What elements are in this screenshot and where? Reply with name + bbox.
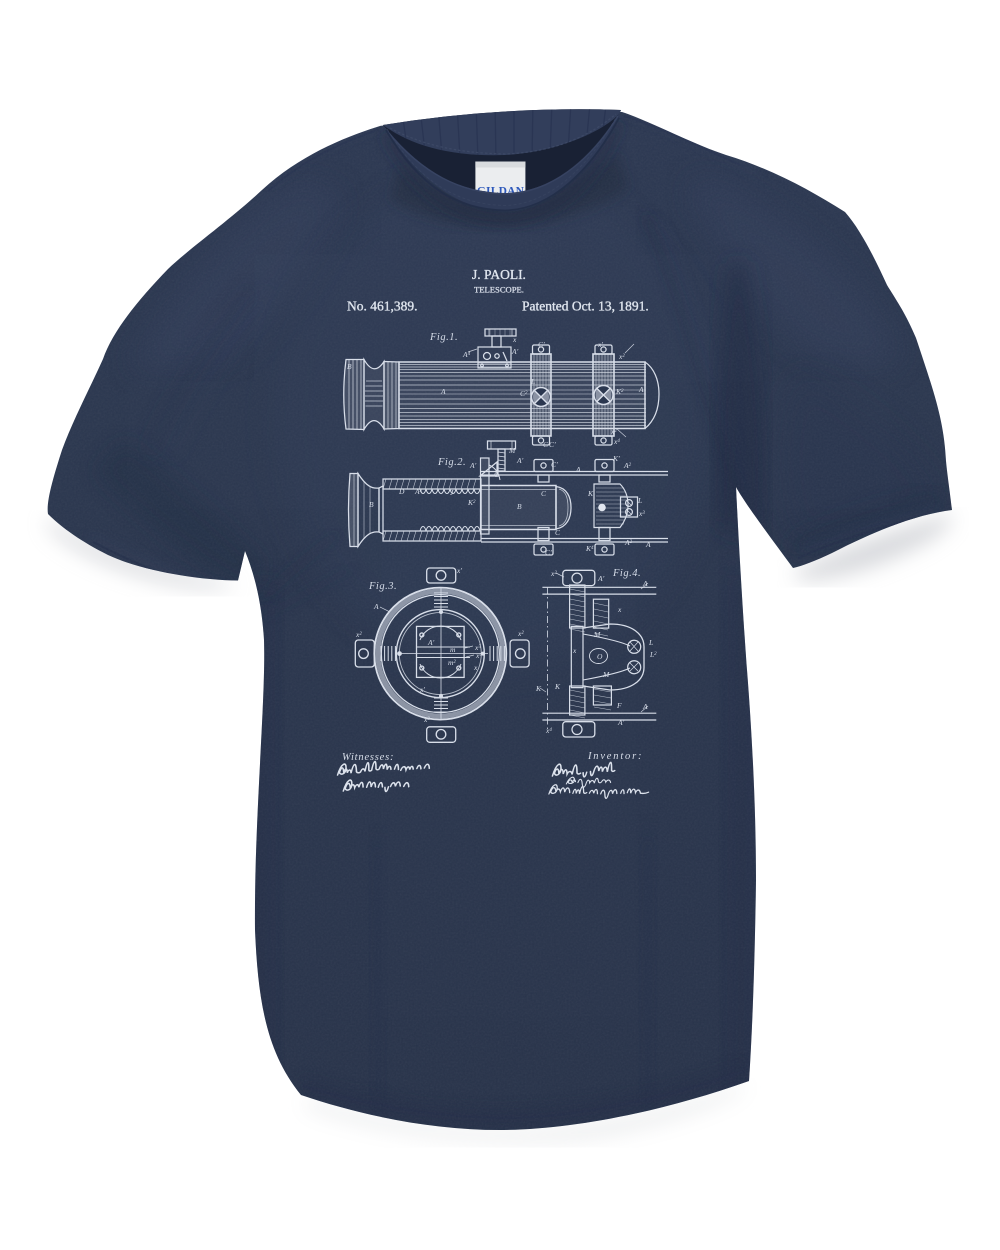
svg-text:L: L [530,377,535,386]
svg-text:L: L [637,496,642,505]
svg-text:x: x [473,663,478,672]
svg-text:K': K' [612,454,620,463]
svg-text:A': A' [597,574,605,583]
svg-text:K: K [587,489,594,498]
svg-text:A': A' [469,461,477,470]
svg-text:J. PAOLI.: J. PAOLI. [472,267,526,282]
svg-text:M: M [593,630,601,639]
svg-text:L: L [648,638,653,647]
svg-text:F: F [616,701,622,710]
svg-text:Fig.4.: Fig.4. [612,568,641,579]
svg-text:x': x' [597,340,603,349]
svg-text:B: B [347,362,352,371]
svg-text:Patented Oct. 13, 1891.: Patented Oct. 13, 1891. [522,299,649,314]
svg-text:TELESCOPE.: TELESCOPE. [474,285,524,295]
svg-text:Witnesses:: Witnesses: [342,752,394,763]
svg-text:A': A' [617,718,625,727]
svg-text:Fig.1.: Fig.1. [429,332,458,343]
svg-text:A: A [638,385,644,394]
svg-text:M: M [508,446,516,455]
svg-text:C': C' [538,340,545,349]
svg-text:A': A' [427,638,435,647]
svg-text:A: A [645,540,651,549]
svg-text:No. 461,389.: No. 461,389. [347,299,418,314]
svg-text:A: A [373,602,379,611]
svg-text:M: M [602,670,610,679]
svg-text:A: A [575,465,581,474]
svg-text:x': x' [419,685,425,694]
svg-text:C': C' [549,440,556,449]
svg-text:Fig.3.: Fig.3. [368,581,397,592]
svg-text:A': A' [516,456,524,465]
svg-text:O: O [597,652,603,661]
svg-text:x: x [617,605,622,614]
svg-text:D: D [398,487,405,496]
svg-text:C': C' [551,460,558,469]
svg-text:m: m [450,645,456,654]
svg-text:G: G [494,470,500,479]
svg-text:Inventor:: Inventor: [587,751,643,762]
svg-text:A': A' [511,347,519,356]
svg-text:x': x' [456,566,462,575]
svg-text:B: B [369,500,374,509]
svg-text:C': C' [545,548,552,557]
svg-text:A: A [440,387,446,396]
svg-text:x: x [572,646,577,655]
svg-text:x: x [512,335,517,344]
svg-text:K: K [554,682,561,691]
svg-text:Fig.2.: Fig.2. [437,457,466,468]
svg-text:B: B [517,502,522,511]
